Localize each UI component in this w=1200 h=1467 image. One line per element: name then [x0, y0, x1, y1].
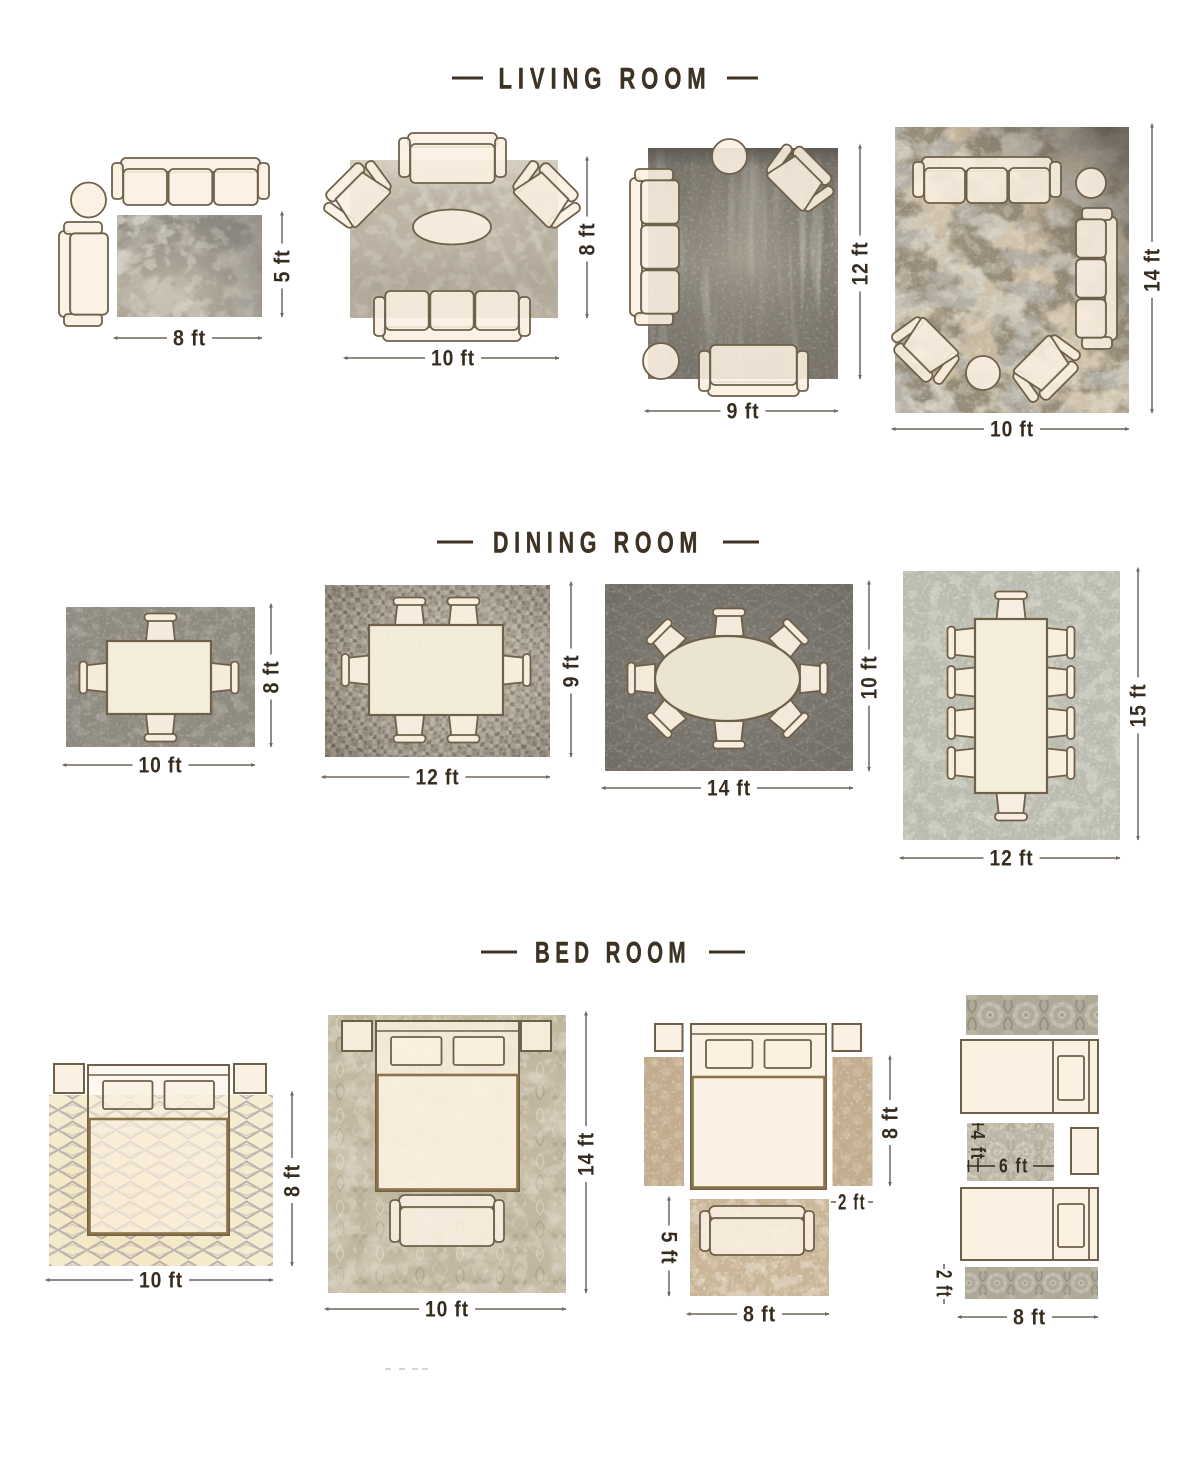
svg-text:9 ft: 9 ft: [727, 399, 760, 424]
svg-text:14 ft: 14 ft: [1140, 248, 1165, 292]
svg-text:10 ft: 10 ft: [431, 346, 475, 371]
svg-text:8 ft: 8 ft: [173, 326, 206, 351]
svg-text:10 ft: 10 ft: [139, 1268, 183, 1293]
svg-text:DINING ROOM: DINING ROOM: [493, 527, 703, 560]
svg-text:BED ROOM: BED ROOM: [535, 937, 691, 970]
svg-text:8 ft: 8 ft: [878, 1106, 903, 1139]
svg-text:6 ft: 6 ft: [999, 1156, 1029, 1178]
svg-text:14 ft: 14 ft: [574, 1132, 599, 1176]
svg-text:8 ft: 8 ft: [575, 223, 600, 256]
svg-text:4 ft: 4 ft: [966, 1131, 988, 1161]
svg-text:12 ft: 12 ft: [848, 242, 873, 286]
svg-text:2 ft: 2 ft: [932, 1270, 957, 1298]
svg-text:8 ft: 8 ft: [280, 1164, 305, 1197]
svg-text:8 ft: 8 ft: [743, 1302, 776, 1327]
svg-text:15 ft: 15 ft: [1126, 684, 1151, 728]
svg-text:9 ft: 9 ft: [559, 655, 584, 688]
svg-text:8 ft: 8 ft: [259, 661, 284, 694]
svg-text:5 ft: 5 ft: [657, 1232, 682, 1265]
svg-text:14 ft: 14 ft: [707, 776, 751, 801]
svg-text:2 ft: 2 ft: [838, 1190, 866, 1215]
svg-text:12 ft: 12 ft: [416, 765, 460, 790]
svg-text:LIVING ROOM: LIVING ROOM: [499, 63, 712, 96]
svg-text:10 ft: 10 ft: [857, 656, 882, 700]
svg-text:10 ft: 10 ft: [139, 753, 183, 778]
svg-text:10 ft: 10 ft: [990, 417, 1034, 442]
svg-text:10 ft: 10 ft: [425, 1297, 469, 1322]
svg-text:8 ft: 8 ft: [1013, 1305, 1046, 1330]
svg-text:12 ft: 12 ft: [990, 846, 1034, 871]
svg-text:5 ft: 5 ft: [270, 250, 295, 283]
